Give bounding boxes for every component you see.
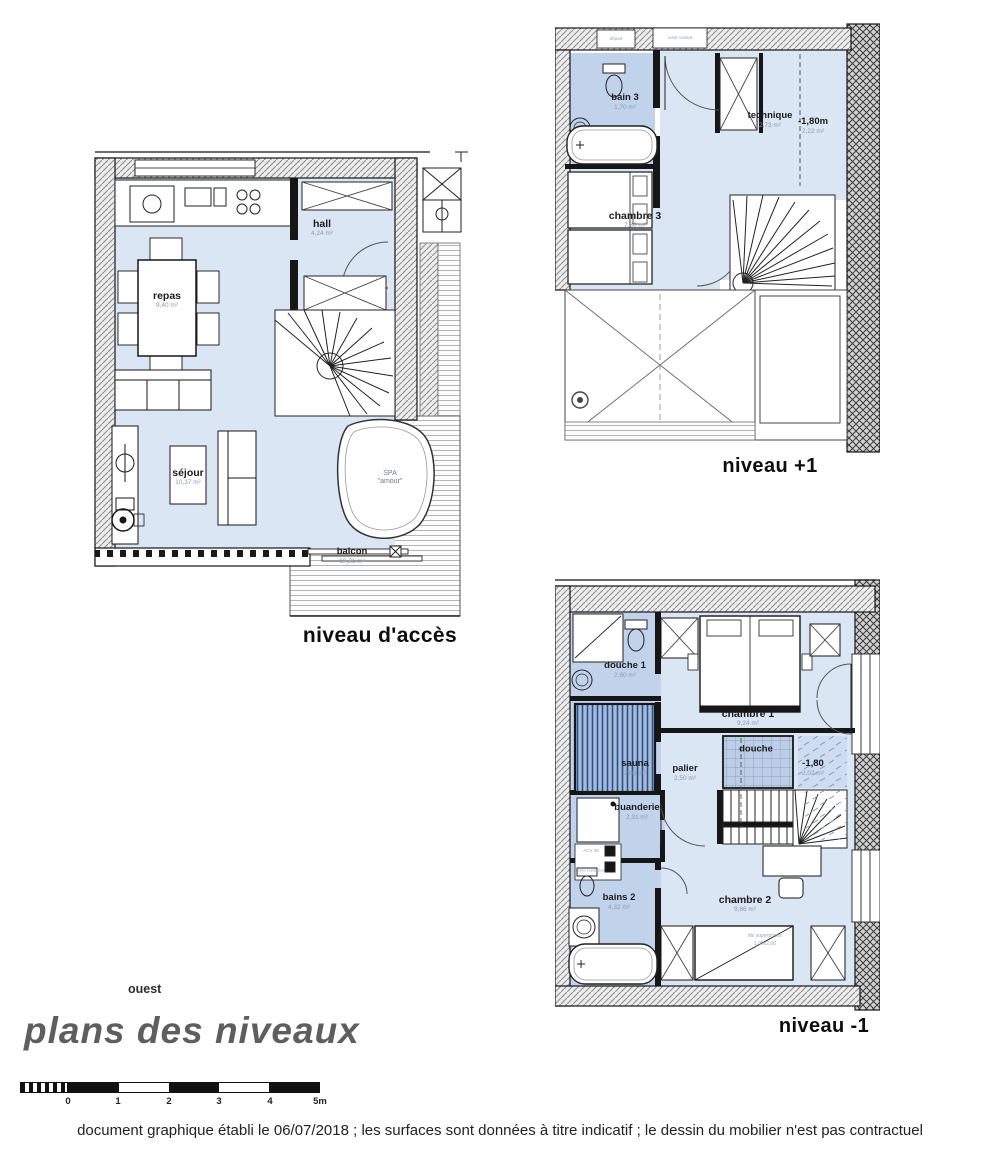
annotation-bunk-size: 1,00x2,00	[754, 941, 776, 947]
sheet-title: plans des niveaux	[24, 1010, 360, 1052]
room-label-buanderie: buanderie 2,31 m²	[614, 803, 659, 821]
caption-niveau-plus1: niveau +1	[690, 455, 850, 478]
plan-niveau-moins1: douche 1 2,80 m² chambre 1 9,24 m² sauna…	[555, 578, 880, 1056]
spiral-staircase	[275, 310, 395, 416]
scale-tick-4: 4	[267, 1096, 272, 1107]
annotation-acv: ACV 38	[583, 848, 599, 854]
room-label-chambre1: chambre 1 9,24 m²	[722, 708, 775, 728]
footer-disclaimer: document graphique établi le 06/07/2018 …	[0, 1122, 1000, 1139]
scale-tick-3: 3	[216, 1096, 221, 1107]
annotation-bunk-name: lits superposés	[748, 933, 781, 939]
annotation-volet-roulant: volet roulant	[668, 35, 693, 41]
plan-plus1-drawing	[555, 18, 880, 486]
scale-tick-0: 0	[65, 1096, 70, 1107]
scale-bar: 0 1 2 3 4 5m	[20, 1079, 320, 1107]
scale-tick-2: 2	[166, 1096, 171, 1107]
attic-area	[565, 290, 847, 440]
scale-bar-subdivisions	[20, 1082, 68, 1093]
room-label-sejour: séjour 10,37 m²	[172, 467, 204, 487]
room-label-repas: repas 9,40 m²	[153, 290, 181, 310]
orientation-label: ouest	[128, 982, 161, 996]
entry-symbol	[423, 152, 468, 232]
room-label-sauna: sauna 2,83 m²	[621, 759, 648, 777]
room-label-spa: SPA "amour"	[378, 470, 403, 486]
room-label-douche1: douche 1 2,80 m²	[604, 661, 646, 679]
room-label-souspente-plus1: -1,80m 2,22 m²	[798, 117, 828, 135]
room-label-souspente-moins1: -1,80 2,02 m²	[802, 759, 824, 777]
annotation-depart: départ	[610, 36, 623, 42]
room-label-chambre2: chambre 2 9,86 m²	[719, 894, 772, 914]
room-label-technique: technique 2,73 m²	[748, 111, 793, 129]
plan-niveau-acces: repas 9,40 m² hall 4,24 m² séjour 10,37 …	[90, 148, 470, 658]
room-label-douche: douche	[739, 745, 773, 756]
room-label-hall: hall 4,24 m²	[311, 218, 333, 238]
annotation-vase-expansion: vase expansion	[577, 868, 605, 873]
caption-niveau-acces: niveau d'accès	[280, 624, 480, 648]
winder-staircase	[730, 195, 835, 293]
room-label-palier: palier 2,50 m²	[672, 764, 697, 782]
room-label-balcon: balcon 19,81 m²	[337, 547, 368, 565]
sauna-cabin	[575, 704, 655, 792]
caption-niveau-moins1: niveau -1	[744, 1015, 904, 1038]
room-label-chambre3: chambre 3 7,36 m²	[609, 210, 662, 230]
plan-niveau-plus1: départ volet roulant bain 3 1,70 m² tech…	[555, 18, 880, 486]
plan-acces-drawing	[90, 148, 470, 658]
room-label-bain3: bain 3 1,70 m²	[611, 93, 638, 111]
room-label-bains2: bains 2 4,32 m²	[603, 893, 636, 911]
scale-bar-main	[68, 1082, 320, 1093]
scale-tick-1: 1	[115, 1096, 120, 1107]
kitchen-counter	[115, 180, 295, 226]
scale-tick-5: 5m	[313, 1096, 327, 1107]
plan-moins1-drawing	[555, 578, 880, 1056]
balcon-checkbox-icon	[390, 546, 401, 557]
